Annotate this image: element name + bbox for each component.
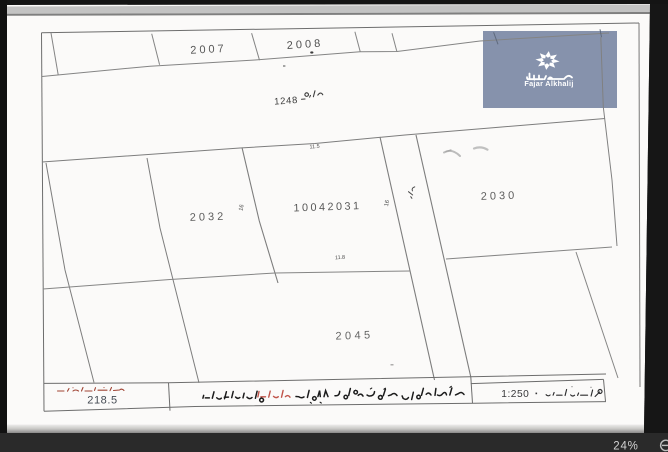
svg-text:2007: 2007 [190,43,227,57]
svg-text:2030: 2030 [481,190,518,203]
svg-text:2008: 2008 [286,38,323,53]
svg-text:10042031: 10042031 [293,200,361,214]
svg-text:218.5: 218.5 [87,395,118,407]
svg-text:2045: 2045 [335,329,373,342]
svg-text:1248: 1248 [274,95,299,108]
svg-text:11.8: 11.8 [335,255,345,262]
svg-text:11.5: 11.5 [309,144,319,151]
svg-text:2032: 2032 [190,211,227,224]
svg-text:1:250: 1:250 [501,389,529,400]
svg-text:24%: 24% [613,441,638,452]
svg-text:Fajar Alkhalij: Fajar Alkhalij [524,79,573,88]
